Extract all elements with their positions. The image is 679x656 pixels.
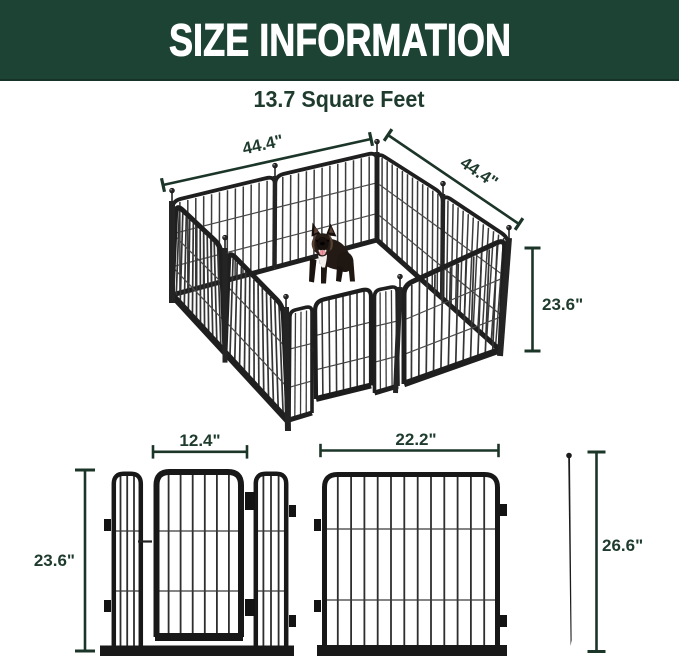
svg-text:44.4": 44.4" <box>241 131 285 158</box>
svg-text:22.2": 22.2" <box>395 430 436 449</box>
svg-text:12.4": 12.4" <box>179 431 220 450</box>
svg-text:23.6": 23.6" <box>542 295 583 314</box>
svg-text:SIZE INFORMATION: SIZE INFORMATION <box>169 15 511 66</box>
svg-text:23.6": 23.6" <box>34 551 75 570</box>
svg-text:26.6": 26.6" <box>602 536 643 555</box>
svg-text:13.7 Square Feet: 13.7 Square Feet <box>254 86 425 112</box>
